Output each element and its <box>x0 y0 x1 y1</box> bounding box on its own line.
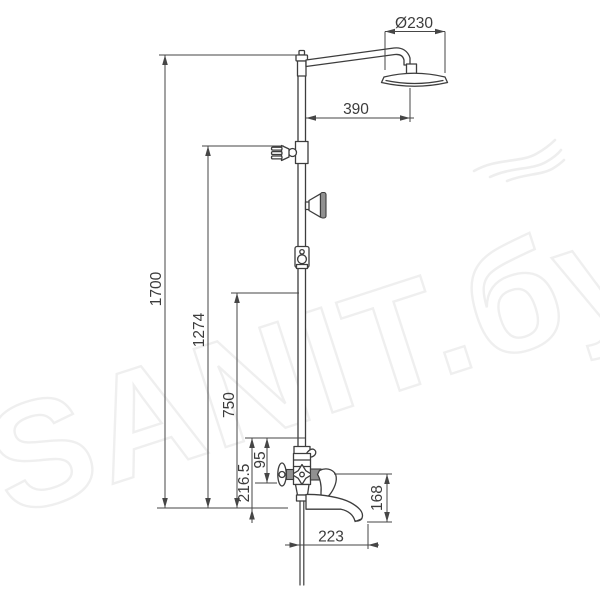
shower-arm <box>306 48 410 67</box>
hand-shower-holder <box>272 142 309 164</box>
dim-spout-reach-label: 223 <box>318 529 344 546</box>
diverter-valve <box>295 247 309 269</box>
dim-valve-offset-label: 95 <box>252 451 269 468</box>
wave-swirl-icon <box>474 140 564 181</box>
dim-mixer-height-label: 216.5 <box>236 464 253 503</box>
dim-spout-drop-label: 168 <box>369 485 386 511</box>
shower-hose <box>300 501 304 585</box>
dim-holder-height-label: 1274 <box>191 312 208 347</box>
lever-handle <box>311 469 337 498</box>
cross-handle-left <box>278 463 294 486</box>
dim-spout-reach: 223 <box>285 524 379 549</box>
shower-system-dimension-diagram: SANIT.бу <box>0 0 600 600</box>
dim-total-height-label: 1700 <box>148 271 165 306</box>
rain-shower-head <box>382 73 448 86</box>
wall-mount-bracket <box>306 193 327 219</box>
technical-drawing-page: SANIT.бу <box>0 0 600 600</box>
dim-arm-reach-label: 390 <box>343 101 369 118</box>
dim-supply-height-label: 750 <box>221 392 238 418</box>
dim-head-diameter-label: Ø230 <box>395 15 433 32</box>
dim-arm-reach: 390 <box>306 88 414 122</box>
tub-spout <box>306 494 362 521</box>
